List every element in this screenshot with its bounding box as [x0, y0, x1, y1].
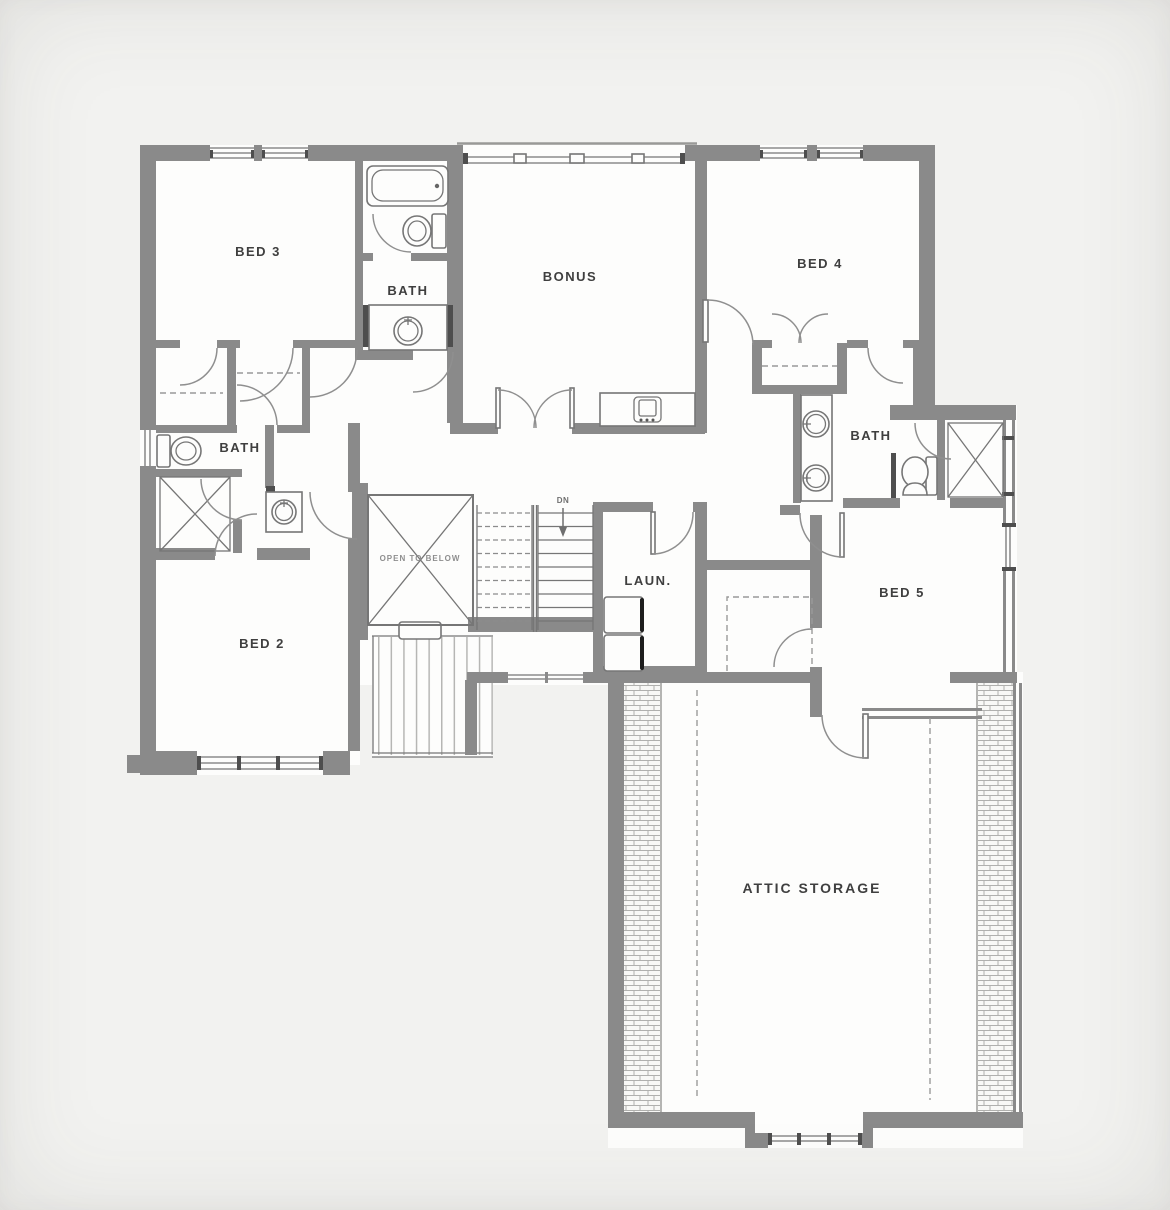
label-bed5: BED 5: [879, 585, 925, 600]
toilet-right-bath: [902, 457, 937, 495]
label-attic-storage: ATTIC STORAGE: [742, 880, 881, 896]
bed5-window: [1002, 523, 1016, 571]
label-bath-right: BATH: [850, 428, 891, 443]
label-bonus: BONUS: [543, 269, 597, 284]
bathtub: [367, 166, 448, 206]
bath-left-window: [140, 430, 156, 466]
toilet-top-bath: [403, 214, 446, 248]
label-open-to-below: OPEN TO BELOW: [380, 554, 461, 563]
attic-window-band: [768, 1133, 862, 1145]
label-stair-dn: DN: [557, 496, 570, 505]
label-bed3: BED 3: [235, 244, 281, 259]
label-bed4: BED 4: [797, 256, 843, 271]
label-bed2: BED 2: [239, 636, 285, 651]
bed2-window-band: [197, 751, 323, 775]
vanity-left-bath: [266, 492, 302, 532]
toilet-left-bath: [157, 435, 201, 467]
vanity-top-bath: [369, 305, 447, 350]
bonus-wet-bar: [600, 393, 695, 426]
floor-plan-page: BED 3 BATH BONUS BED 4 BATH BATH BED 2 B…: [0, 0, 1170, 1210]
label-laundry: LAUN.: [624, 573, 671, 588]
floor-plan-drawing: BED 3 BATH BONUS BED 4 BATH BATH BED 2 B…: [0, 0, 1170, 1210]
label-bath-top: BATH: [387, 283, 428, 298]
vanity-right-bath: [801, 395, 832, 501]
label-bath-left: BATH: [219, 440, 260, 455]
